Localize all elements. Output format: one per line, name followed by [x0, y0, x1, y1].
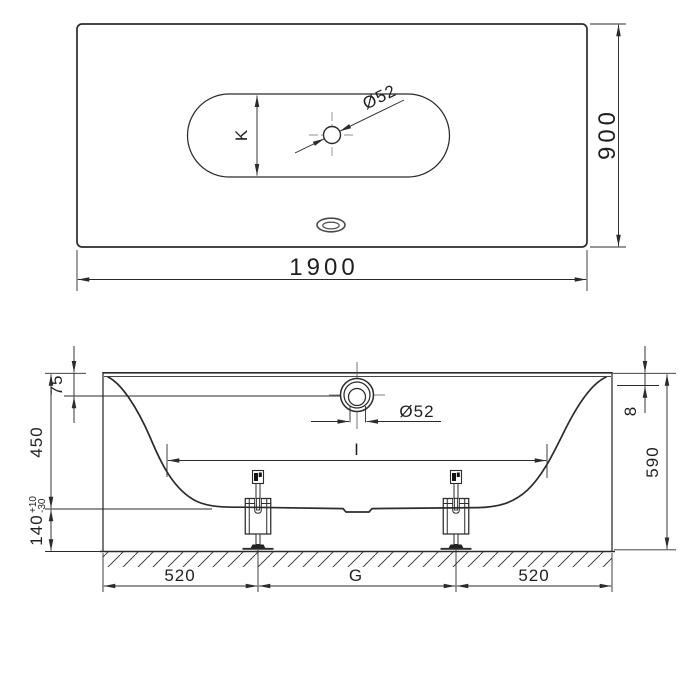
overflow-cover-outer	[317, 218, 345, 232]
overflow-diameter-label: Ø52	[399, 402, 434, 421]
floor	[100, 552, 615, 568]
left-leg-offset-label: 520	[164, 566, 195, 585]
drain-diameter-label: Ø52	[360, 81, 400, 113]
overall-height-label: 590	[643, 446, 662, 477]
dimension-basin-width: K	[232, 96, 257, 176]
overflow-outer-circle	[341, 379, 374, 412]
drain-hole: Ø52	[295, 81, 404, 158]
drawing-canvas: Ø52 K 1900 900	[0, 0, 700, 700]
right-leg	[441, 471, 472, 549]
dimension-leg-height: 140 +10 -30	[27, 496, 102, 552]
dimension-inner-length: I	[167, 440, 547, 478]
top-view: Ø52 K 1900 900	[77, 24, 626, 291]
dimension-width: 900	[590, 24, 626, 247]
tub-basin-outline	[188, 94, 450, 177]
drain-leader-lower	[295, 139, 324, 153]
dimension-rim-to-overflow: 75	[45, 346, 340, 423]
inner-depth-label: 450	[27, 426, 46, 457]
overflow-cover	[317, 218, 345, 232]
side-view: Ø52 I 75 450 140 +10	[27, 346, 676, 592]
dimension-length: 1900	[77, 250, 587, 291]
right-leg-offset-label: 520	[518, 566, 549, 585]
rim-edge-label: 8	[621, 406, 640, 416]
bathtub-technical-drawing: Ø52 K 1900 900	[0, 0, 700, 700]
leg-height-tolerance-minus: -30	[37, 498, 48, 513]
leg-distance-label: G	[349, 566, 363, 585]
length-label: 1900	[289, 254, 358, 281]
basin-width-label: K	[232, 129, 251, 141]
inner-length-label: I	[354, 440, 360, 459]
drain-circle	[324, 127, 341, 144]
leg-height-label: 140	[27, 514, 46, 545]
rim-to-overflow-label: 75	[47, 375, 66, 396]
width-label: 900	[594, 108, 621, 160]
floor-hatching	[103, 552, 612, 568]
overflow-cover-inner	[323, 222, 339, 229]
dimension-overflow-diameter: Ø52	[311, 402, 441, 422]
left-leg	[243, 471, 274, 549]
